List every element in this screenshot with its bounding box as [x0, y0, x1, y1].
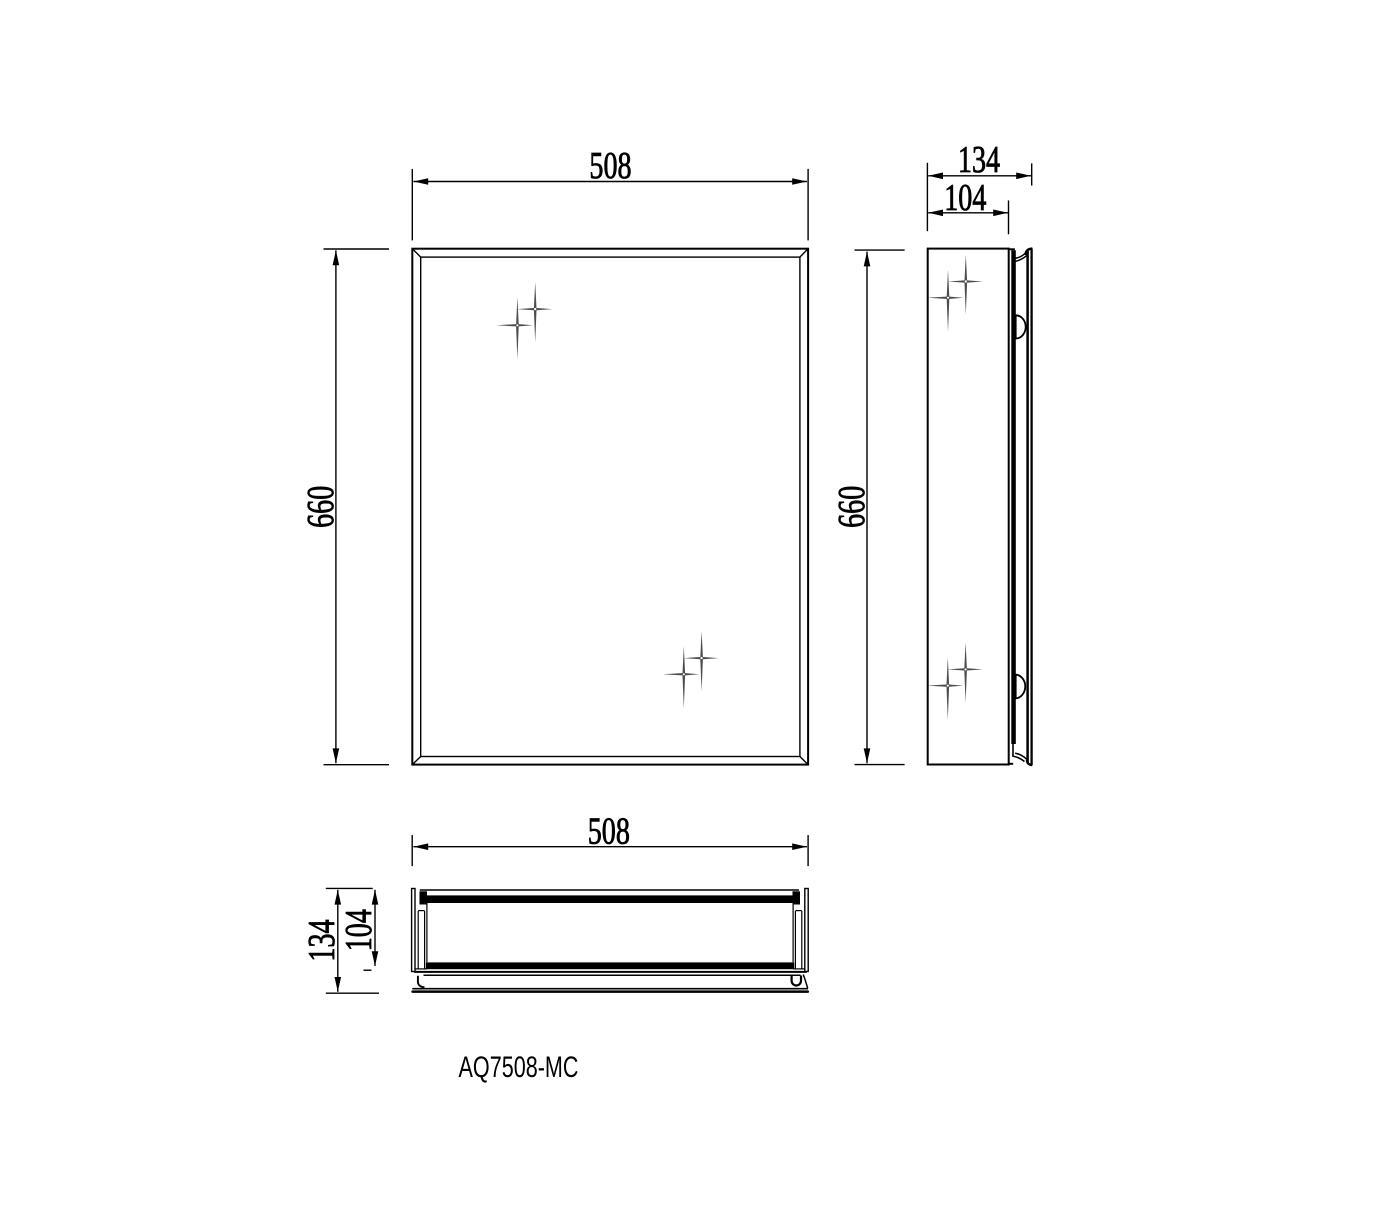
svg-text:134: 134 [958, 139, 1000, 181]
svg-text:104: 104 [338, 909, 380, 951]
svg-text:508: 508 [589, 145, 631, 187]
svg-text:660: 660 [300, 486, 342, 528]
svg-text:508: 508 [588, 810, 630, 852]
svg-text:AQ7508-MC: AQ7508-MC [459, 1050, 579, 1084]
svg-text:134: 134 [301, 919, 343, 961]
svg-text:104: 104 [944, 177, 986, 219]
svg-text:660: 660 [831, 486, 873, 528]
